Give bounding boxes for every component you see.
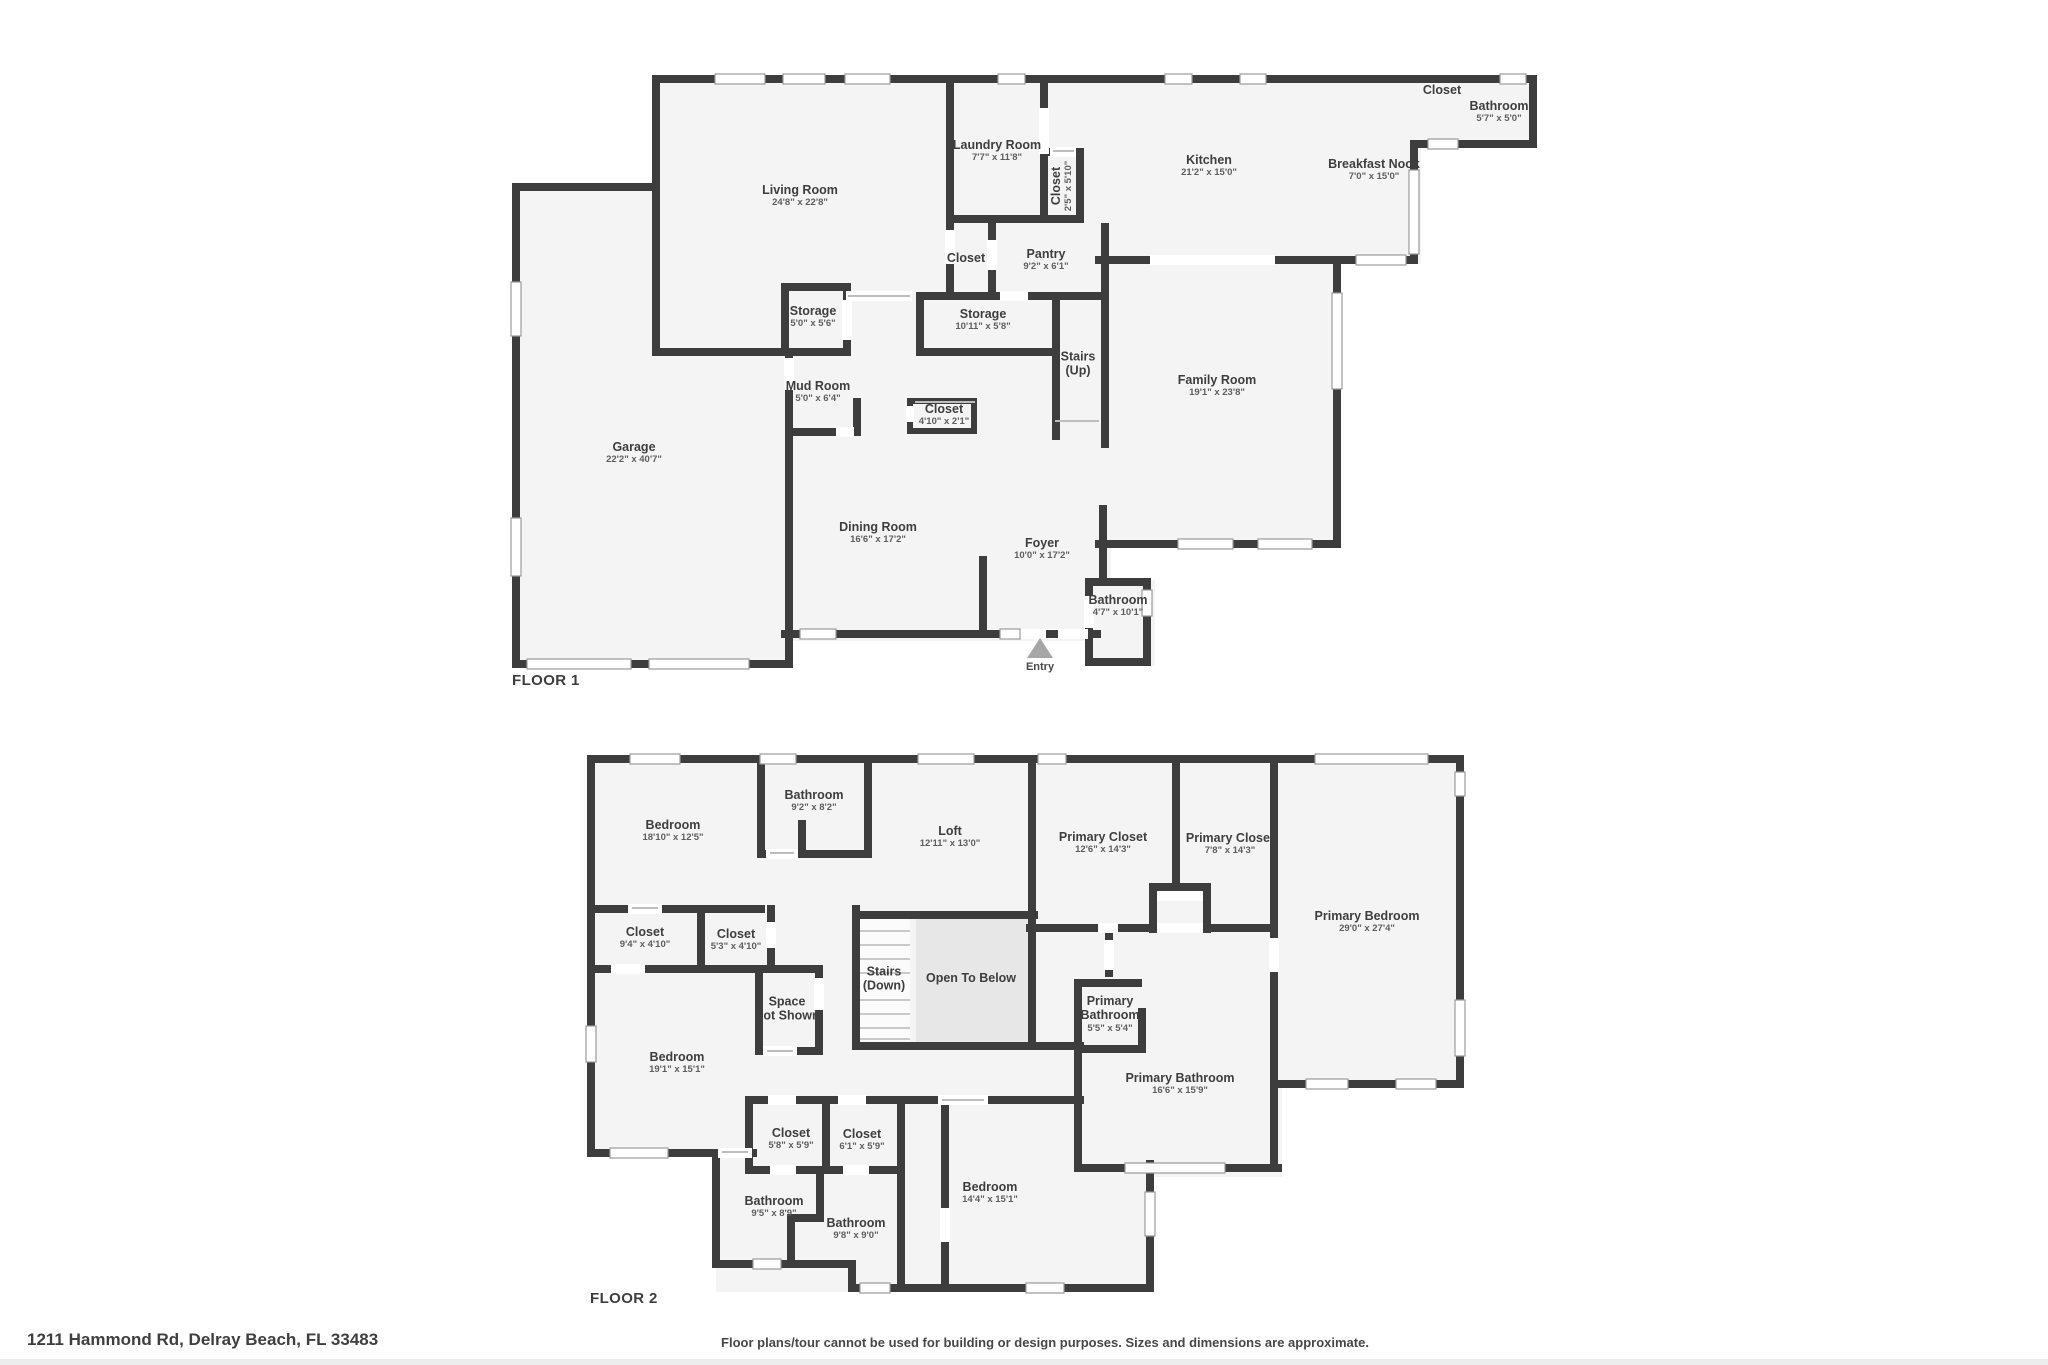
floor1-title: FLOOR 1 xyxy=(512,672,580,689)
room-label-closet-61: Closet6'1" x 5'9" xyxy=(839,1127,884,1153)
room-label-living-room: Living Room24'8" x 22'8" xyxy=(762,183,838,209)
room-label-stairs-up: Stairs (Up) xyxy=(1061,350,1096,379)
room-label-primary-closet-1: Primary Closet12'6" x 14'3" xyxy=(1059,830,1147,856)
room-label-closet-94: Closet9'4" x 4'10" xyxy=(620,925,671,951)
room-label-laundry-room: Laundry Room7'7" x 11'8" xyxy=(953,138,1041,164)
room-label-bathroom-f1-small: Bathroom5'7" x 5'0" xyxy=(1469,99,1528,125)
room-label-bedroom-2: Bedroom18'10" x 12'5" xyxy=(642,818,703,844)
room-label-mud-room: Mud Room5'0" x 6'4" xyxy=(786,379,851,405)
room-label-bathroom-95: Bathroom9'5" x 8'9" xyxy=(744,1194,803,1220)
room-label-family-room: Family Room19'1" x 23'8" xyxy=(1178,373,1257,399)
room-label-breakfast-nook: Breakfast Nook7'0" x 15'0" xyxy=(1328,157,1420,183)
room-label-storage-small: Storage5'0" x 5'6" xyxy=(790,304,837,330)
disclaimer-text: Floor plans/tour cannot be used for buil… xyxy=(721,1335,1369,1350)
room-label-kitchen: Kitchen21'2" x 15'0" xyxy=(1181,153,1237,179)
room-label-closet-pantry-hall: Closet xyxy=(947,251,985,265)
room-label-space-not-shown: Space Not Shown xyxy=(754,995,819,1024)
room-label-loft: Loft12'11" x 13'0" xyxy=(920,824,981,850)
room-label-bathroom-f2-top: Bathroom9'2" x 8'2" xyxy=(784,788,843,814)
room-label-garage: Garage22'2" x 40'7" xyxy=(606,440,662,466)
page-bottom-edge xyxy=(0,1359,2048,1365)
property-address: 1211 Hammond Rd, Delray Beach, FL 33483 xyxy=(27,1330,378,1350)
entry-label: Entry xyxy=(1026,661,1054,673)
room-label-storage-large: Storage10'11" x 5'8" xyxy=(955,307,1010,333)
room-label-closet-58: Closet5'8" x 5'9" xyxy=(768,1126,813,1152)
room-label-bathroom-98: Bathroom9'8" x 9'0" xyxy=(826,1216,885,1242)
room-label-bedroom-4: Bedroom14'4" x 15'1" xyxy=(962,1180,1018,1206)
room-label-closet-topright: Closet xyxy=(1423,83,1461,97)
room-label-closet-53: Closet5'3" x 4'10" xyxy=(711,927,762,953)
floor-plan-drawing xyxy=(0,0,2048,1365)
room-label-primary-bathroom-small: Primary Bathroom5'5" x 5'4" xyxy=(1080,994,1139,1034)
room-label-primary-bathroom: Primary Bathroom16'6" x 15'9" xyxy=(1125,1071,1234,1097)
room-label-closet-foyer: Closet4'10" x 2'1" xyxy=(919,402,970,428)
room-label-foyer: Foyer10'0" x 17'2" xyxy=(1014,536,1070,562)
room-label-closet-hall: Closet2'5" x 5'10" xyxy=(1049,161,1075,212)
floor-plan-page: Living Room24'8" x 22'8" Laundry Room7'7… xyxy=(0,0,2048,1365)
floor2-title: FLOOR 2 xyxy=(590,1290,658,1307)
room-label-bedroom-3: Bedroom19'1" x 15'1" xyxy=(649,1050,705,1076)
room-label-primary-bedroom: Primary Bedroom29'0" x 27'4" xyxy=(1315,909,1420,935)
room-label-open-to-below: Open To Below xyxy=(926,971,1016,985)
room-label-primary-closet-2: Primary Closet7'8" x 14'3" xyxy=(1186,831,1274,857)
room-label-pantry: Pantry9'2" x 6'1" xyxy=(1023,247,1068,273)
room-label-bathroom-foyer: Bathroom4'7" x 10'1" xyxy=(1088,593,1147,619)
room-label-dining-room: Dining Room16'6" x 17'2" xyxy=(839,520,917,546)
room-label-stairs-down: Stairs (Down) xyxy=(863,965,905,994)
